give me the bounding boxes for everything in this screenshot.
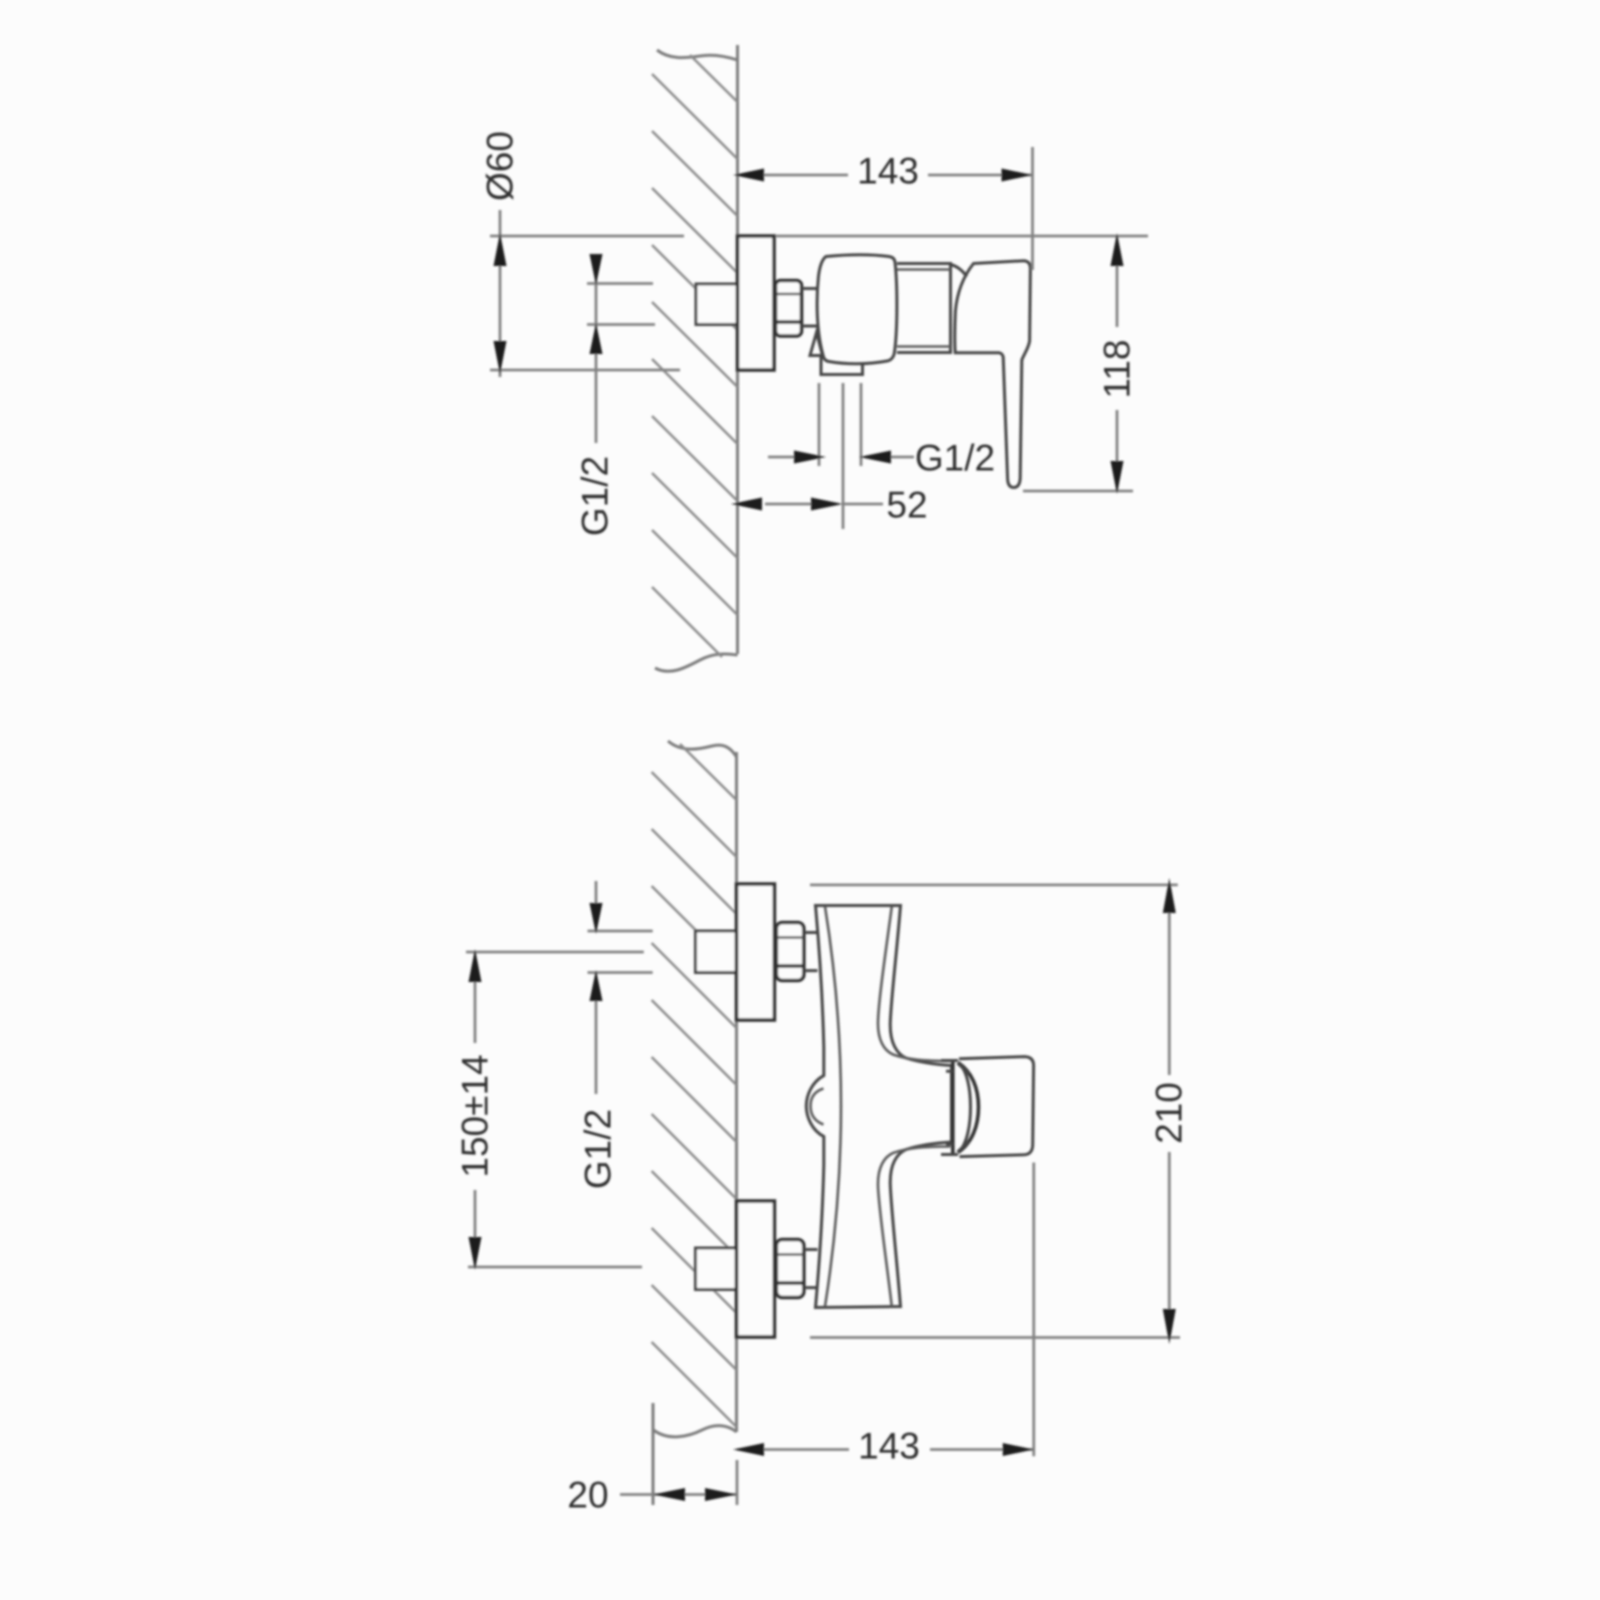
svg-text:150±14: 150±14 — [455, 1054, 496, 1177]
svg-text:G1/2: G1/2 — [915, 438, 995, 479]
svg-text:G1/2: G1/2 — [578, 1109, 619, 1189]
svg-text:G1/2: G1/2 — [575, 456, 616, 536]
svg-text:143: 143 — [858, 1426, 920, 1467]
svg-text:52: 52 — [886, 485, 927, 526]
svg-text:210: 210 — [1149, 1082, 1190, 1144]
svg-text:143: 143 — [857, 151, 919, 192]
svg-text:118: 118 — [1097, 340, 1138, 399]
svg-text:20: 20 — [567, 1475, 608, 1516]
svg-text:Ø60: Ø60 — [480, 131, 521, 201]
